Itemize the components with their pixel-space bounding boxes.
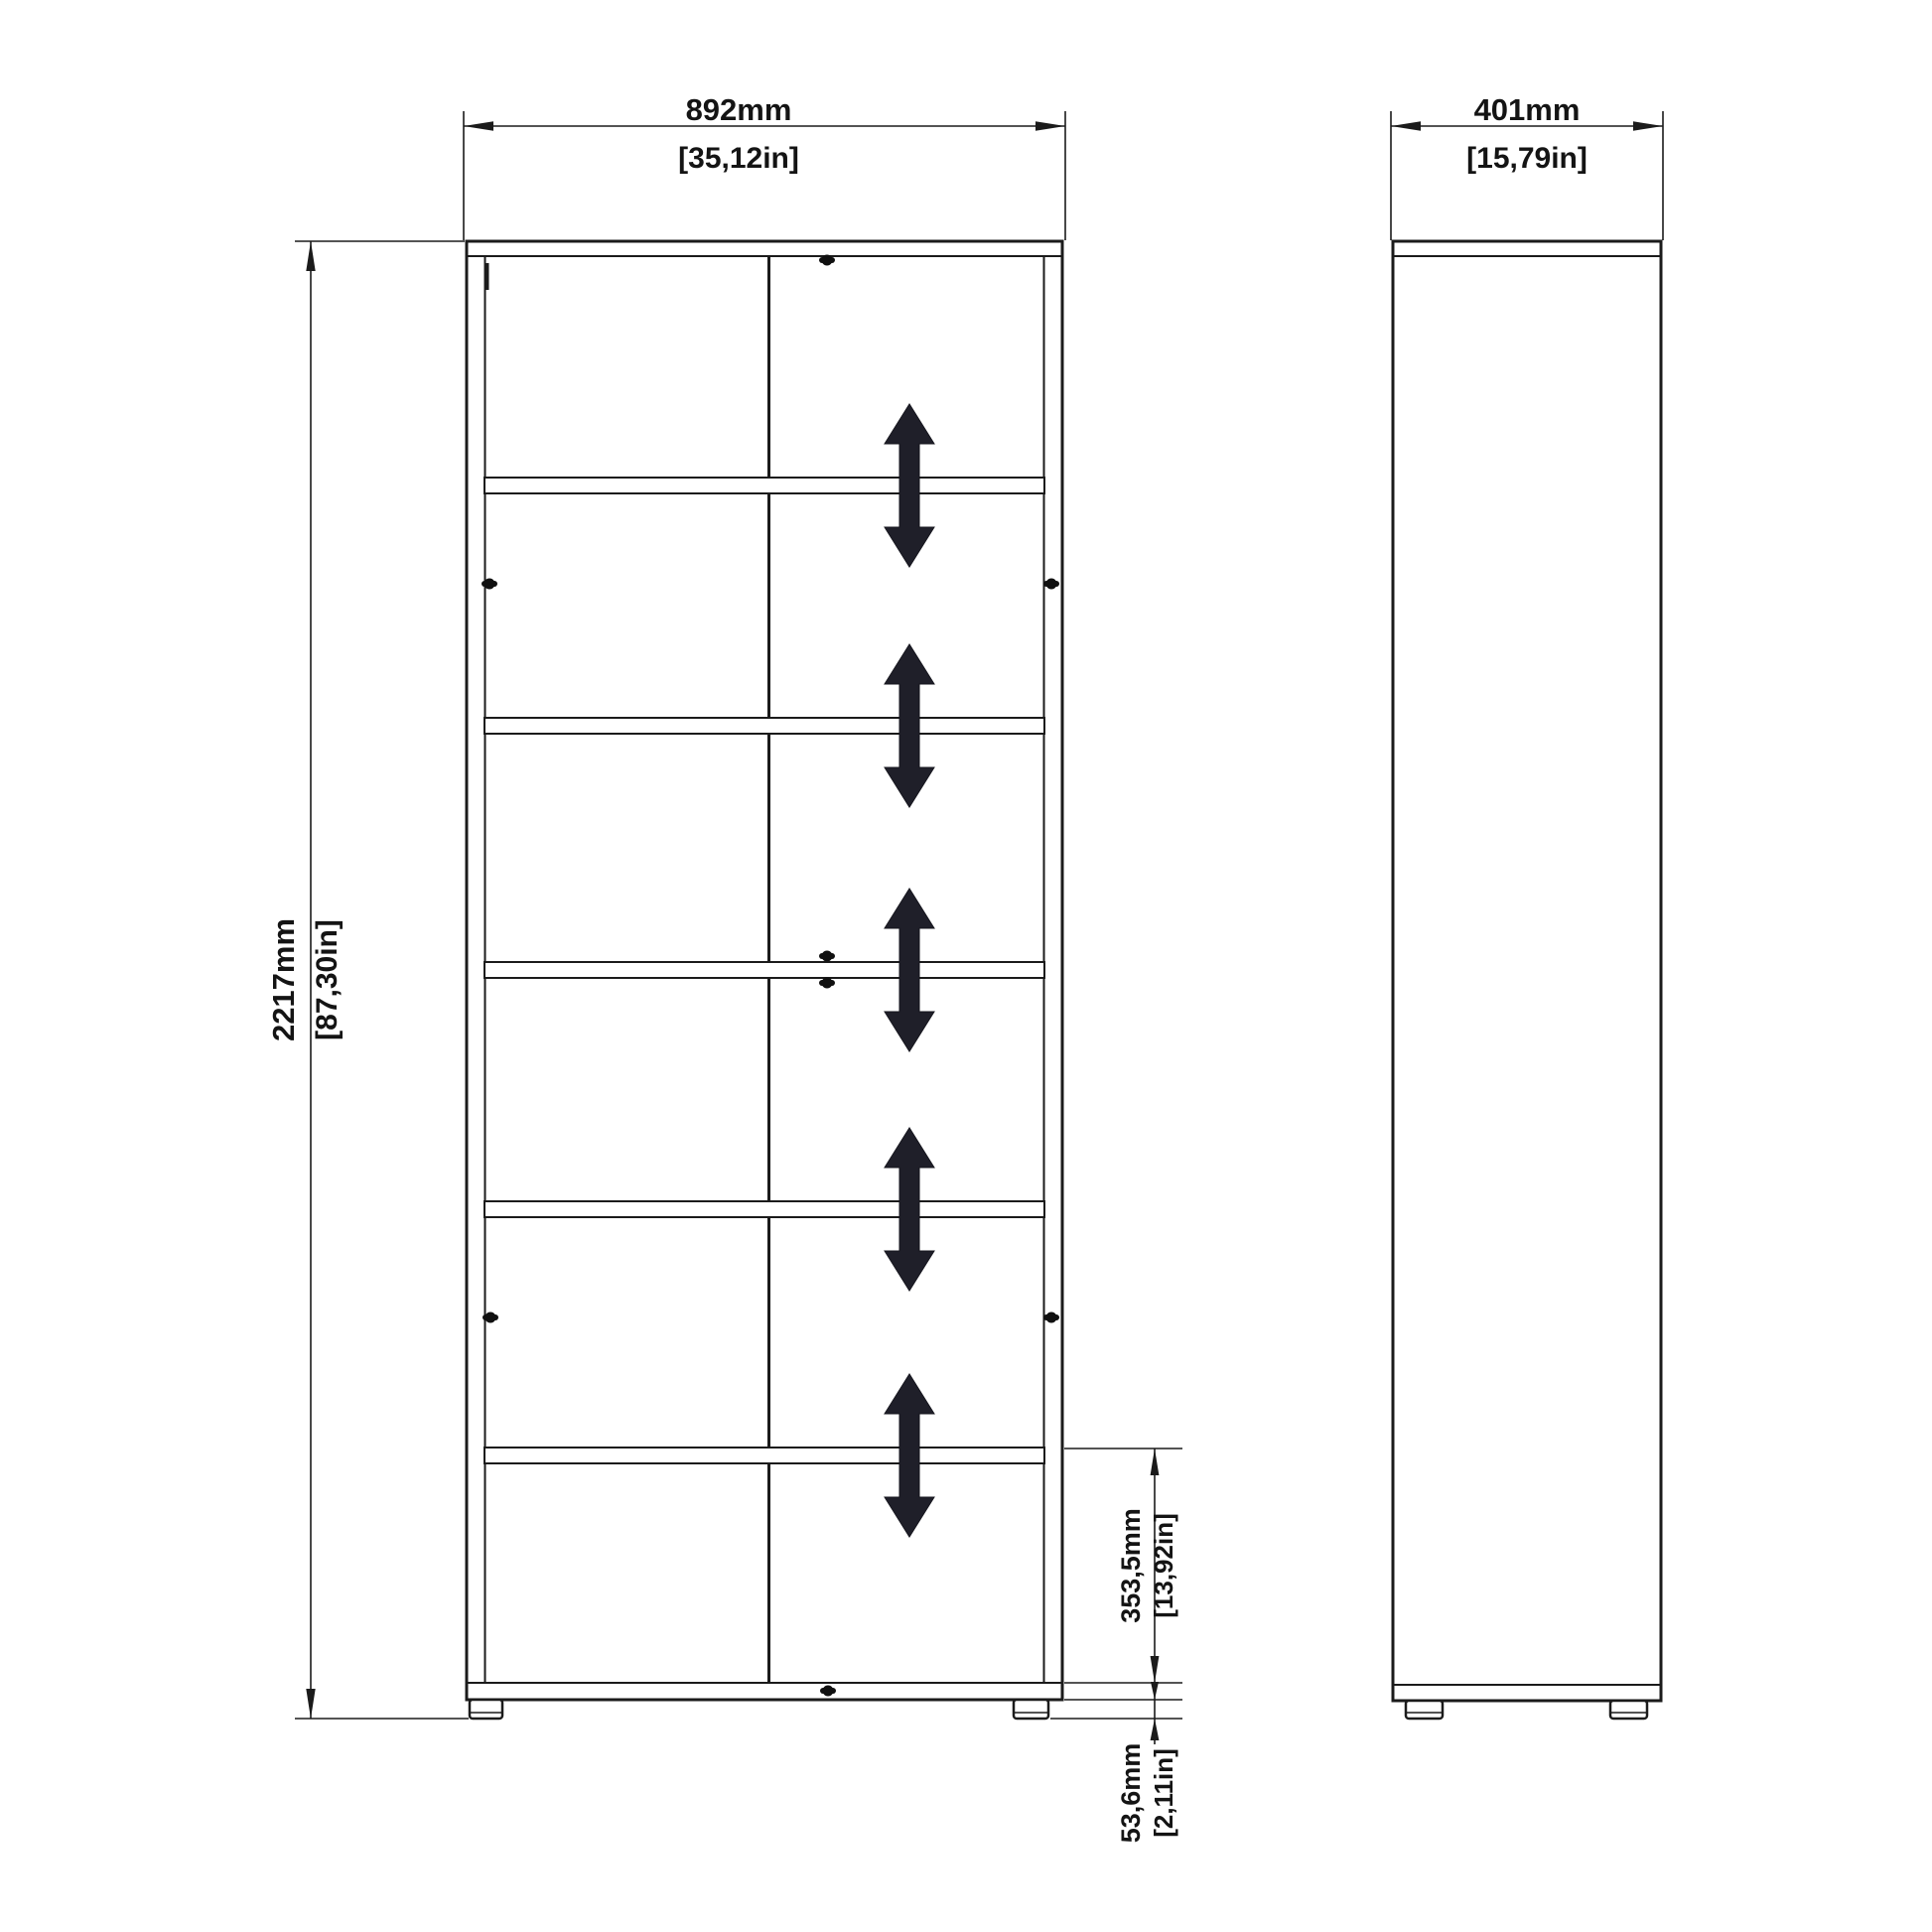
depth-in-label: [15,79in] — [1466, 142, 1587, 175]
depth-mm-label: 401mm — [1474, 92, 1581, 127]
width-in-label: [35,12in] — [678, 142, 799, 175]
depth-dimension: 401mm [15,79in] — [1391, 92, 1663, 240]
width-mm-label: 892mm — [686, 92, 792, 127]
height-in-label: [87,30in] — [311, 919, 344, 1040]
front-view — [467, 241, 1062, 1719]
drawing-svg: 892mm [35,12in] 401mm [15,79in] 2217mm [… — [0, 0, 1932, 1932]
base-dimension: 53,6mm [2,11in] — [1050, 1682, 1182, 1843]
technical-drawing-canvas: 892mm [35,12in] 401mm [15,79in] 2217mm [… — [0, 0, 1932, 1932]
bottom-section-mm-label: 353,5mm — [1116, 1508, 1146, 1623]
side-carcass-outline — [1393, 241, 1661, 1701]
shelf-5 — [484, 1448, 1044, 1463]
front-left-foot — [470, 1700, 502, 1719]
bottom-section-dimension: 353,5mm [13,92in] — [1064, 1449, 1182, 1700]
front-feet — [470, 1700, 1048, 1719]
side-feet — [1406, 1701, 1647, 1719]
base-in-label: [2,11in] — [1149, 1748, 1178, 1838]
shelf-3 — [484, 962, 1044, 978]
side-view — [1393, 241, 1661, 1719]
width-dimension: 892mm [35,12in] — [464, 92, 1065, 240]
base-mm-label: 53,6mm — [1116, 1743, 1146, 1844]
front-right-foot — [1014, 1700, 1048, 1719]
side-front-foot — [1406, 1701, 1443, 1719]
shelf-2 — [484, 718, 1044, 734]
shelf-1 — [484, 478, 1044, 493]
side-back-foot — [1610, 1701, 1647, 1719]
height-dimension: 2217mm [87,30in] — [266, 241, 469, 1719]
height-mm-label: 2217mm — [266, 918, 301, 1041]
shelf-4 — [484, 1201, 1044, 1217]
bottom-section-in-label: [13,92in] — [1149, 1513, 1178, 1618]
